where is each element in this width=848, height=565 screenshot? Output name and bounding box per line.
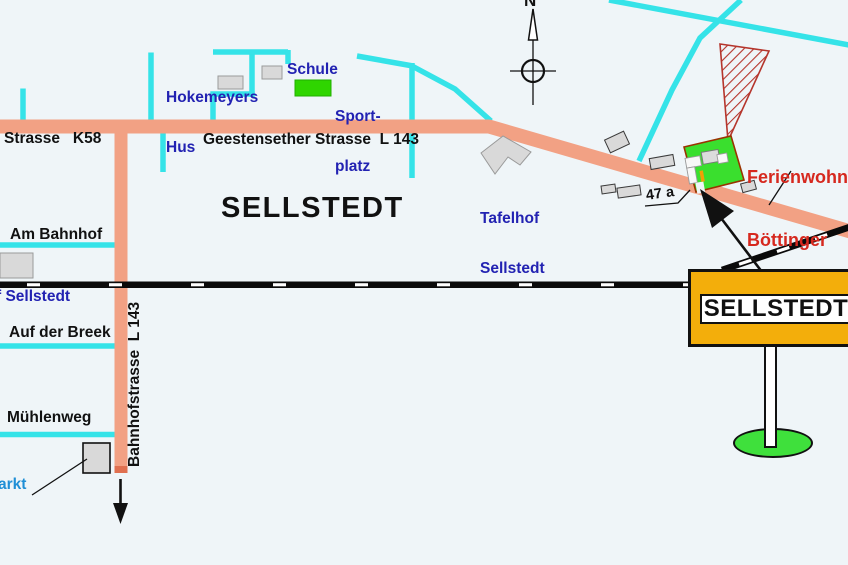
road-end-cap (115, 466, 128, 473)
sportplatz-area (295, 80, 331, 96)
place-label-sportplatz: Sport- platz (335, 76, 381, 208)
sign-post (764, 346, 777, 448)
town-entrance-sign: SELLSTEDT (688, 269, 848, 347)
place-label-schule: Schule (287, 62, 338, 79)
ferienwohnung-line1: Ferienwohnung (747, 167, 848, 188)
markt-building (83, 443, 110, 473)
property-house-1 (685, 156, 702, 168)
sellstedt-map: N Strasse K58 Geestensether Strasse L 14… (0, 0, 848, 565)
town-label: SELLSTEDT (221, 193, 404, 223)
farm-building-2 (649, 154, 675, 169)
place-label-tafelhof: Tafelhof Sellstedt (480, 178, 545, 310)
compass-icon (510, 9, 556, 105)
station-building (0, 253, 33, 278)
compass-north-label: N (524, 0, 536, 10)
place-label-hokemeyers-hus: Hokemeyers Hus (166, 57, 258, 189)
north-arrow-icon (529, 9, 538, 40)
street-label-k58: Strasse K58 (4, 131, 101, 148)
sportplatz-line2: platz (335, 159, 381, 176)
tafelhof-line1: Tafelhof (480, 211, 545, 228)
hokemeyers-line1: Hokemeyers (166, 90, 258, 107)
tafelhof-line2: Sellstedt (480, 261, 545, 278)
markt-label: arkt (0, 477, 26, 494)
farm-building-4 (617, 185, 641, 198)
ferienwohnung-line2: Böttinger (747, 230, 848, 251)
farm-building-1 (605, 131, 630, 153)
town-sign-text: SELLSTEDT (700, 294, 848, 324)
station-label: f Sellstedt (0, 289, 70, 306)
street-label-muehlenweg: Mühlenweg (7, 410, 91, 427)
south-direction-arrow (113, 479, 128, 524)
farm-building-3 (601, 184, 616, 194)
street-label-auf-der-breek: Auf der Breek (9, 325, 111, 342)
railway-line (0, 282, 692, 289)
schule-building (262, 66, 282, 79)
place-label-ferienwohnung: Ferienwohnung Böttinger (747, 125, 848, 293)
destination-label: Donnern Bexhövede (38, 528, 203, 565)
street-label-am-bahnhof: Am Bahnhof (10, 227, 102, 244)
street-label-bahnhofstrasse: Bahnhofstrasse L 143 (127, 297, 144, 467)
leader-markt (32, 459, 87, 495)
hokemeyers-line2: Hus (166, 140, 258, 157)
property-house-4 (717, 153, 728, 164)
sportplatz-line1: Sport- (335, 109, 381, 126)
